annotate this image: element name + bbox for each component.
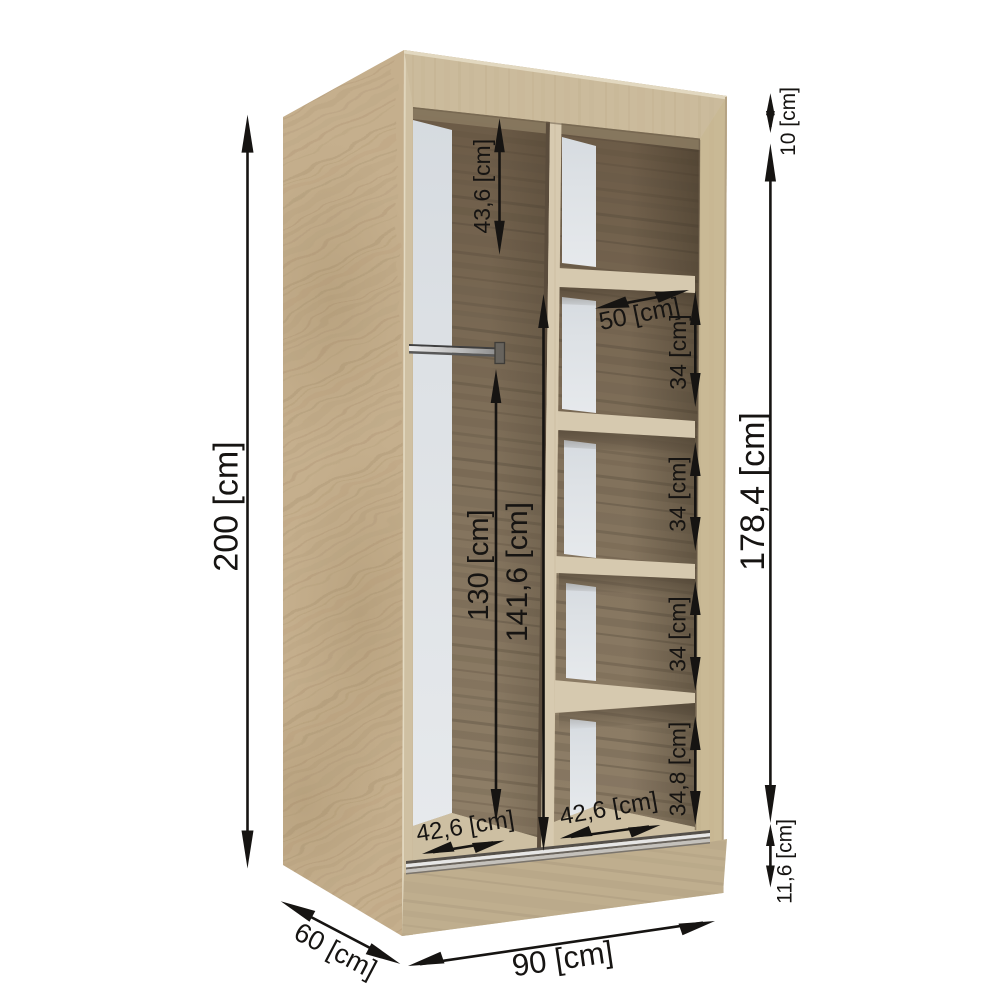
svg-text:43,6 [cm]: 43,6 [cm]	[469, 139, 495, 234]
svg-text:200 [cm]: 200 [cm]	[207, 441, 245, 571]
svg-text:11,6 [cm]: 11,6 [cm]	[774, 819, 797, 904]
svg-text:34 [cm]: 34 [cm]	[665, 456, 691, 531]
svg-text:141,6 [cm]: 141,6 [cm]	[501, 502, 534, 642]
svg-text:34 [cm]: 34 [cm]	[665, 596, 691, 671]
svg-text:130 [cm]: 130 [cm]	[463, 509, 495, 620]
svg-text:10 [cm]: 10 [cm]	[777, 87, 800, 156]
svg-text:34,8 [cm]: 34,8 [cm]	[665, 722, 691, 817]
svg-text:178,4 [cm]: 178,4 [cm]	[734, 412, 772, 571]
svg-text:34 [cm]: 34 [cm]	[665, 314, 691, 389]
